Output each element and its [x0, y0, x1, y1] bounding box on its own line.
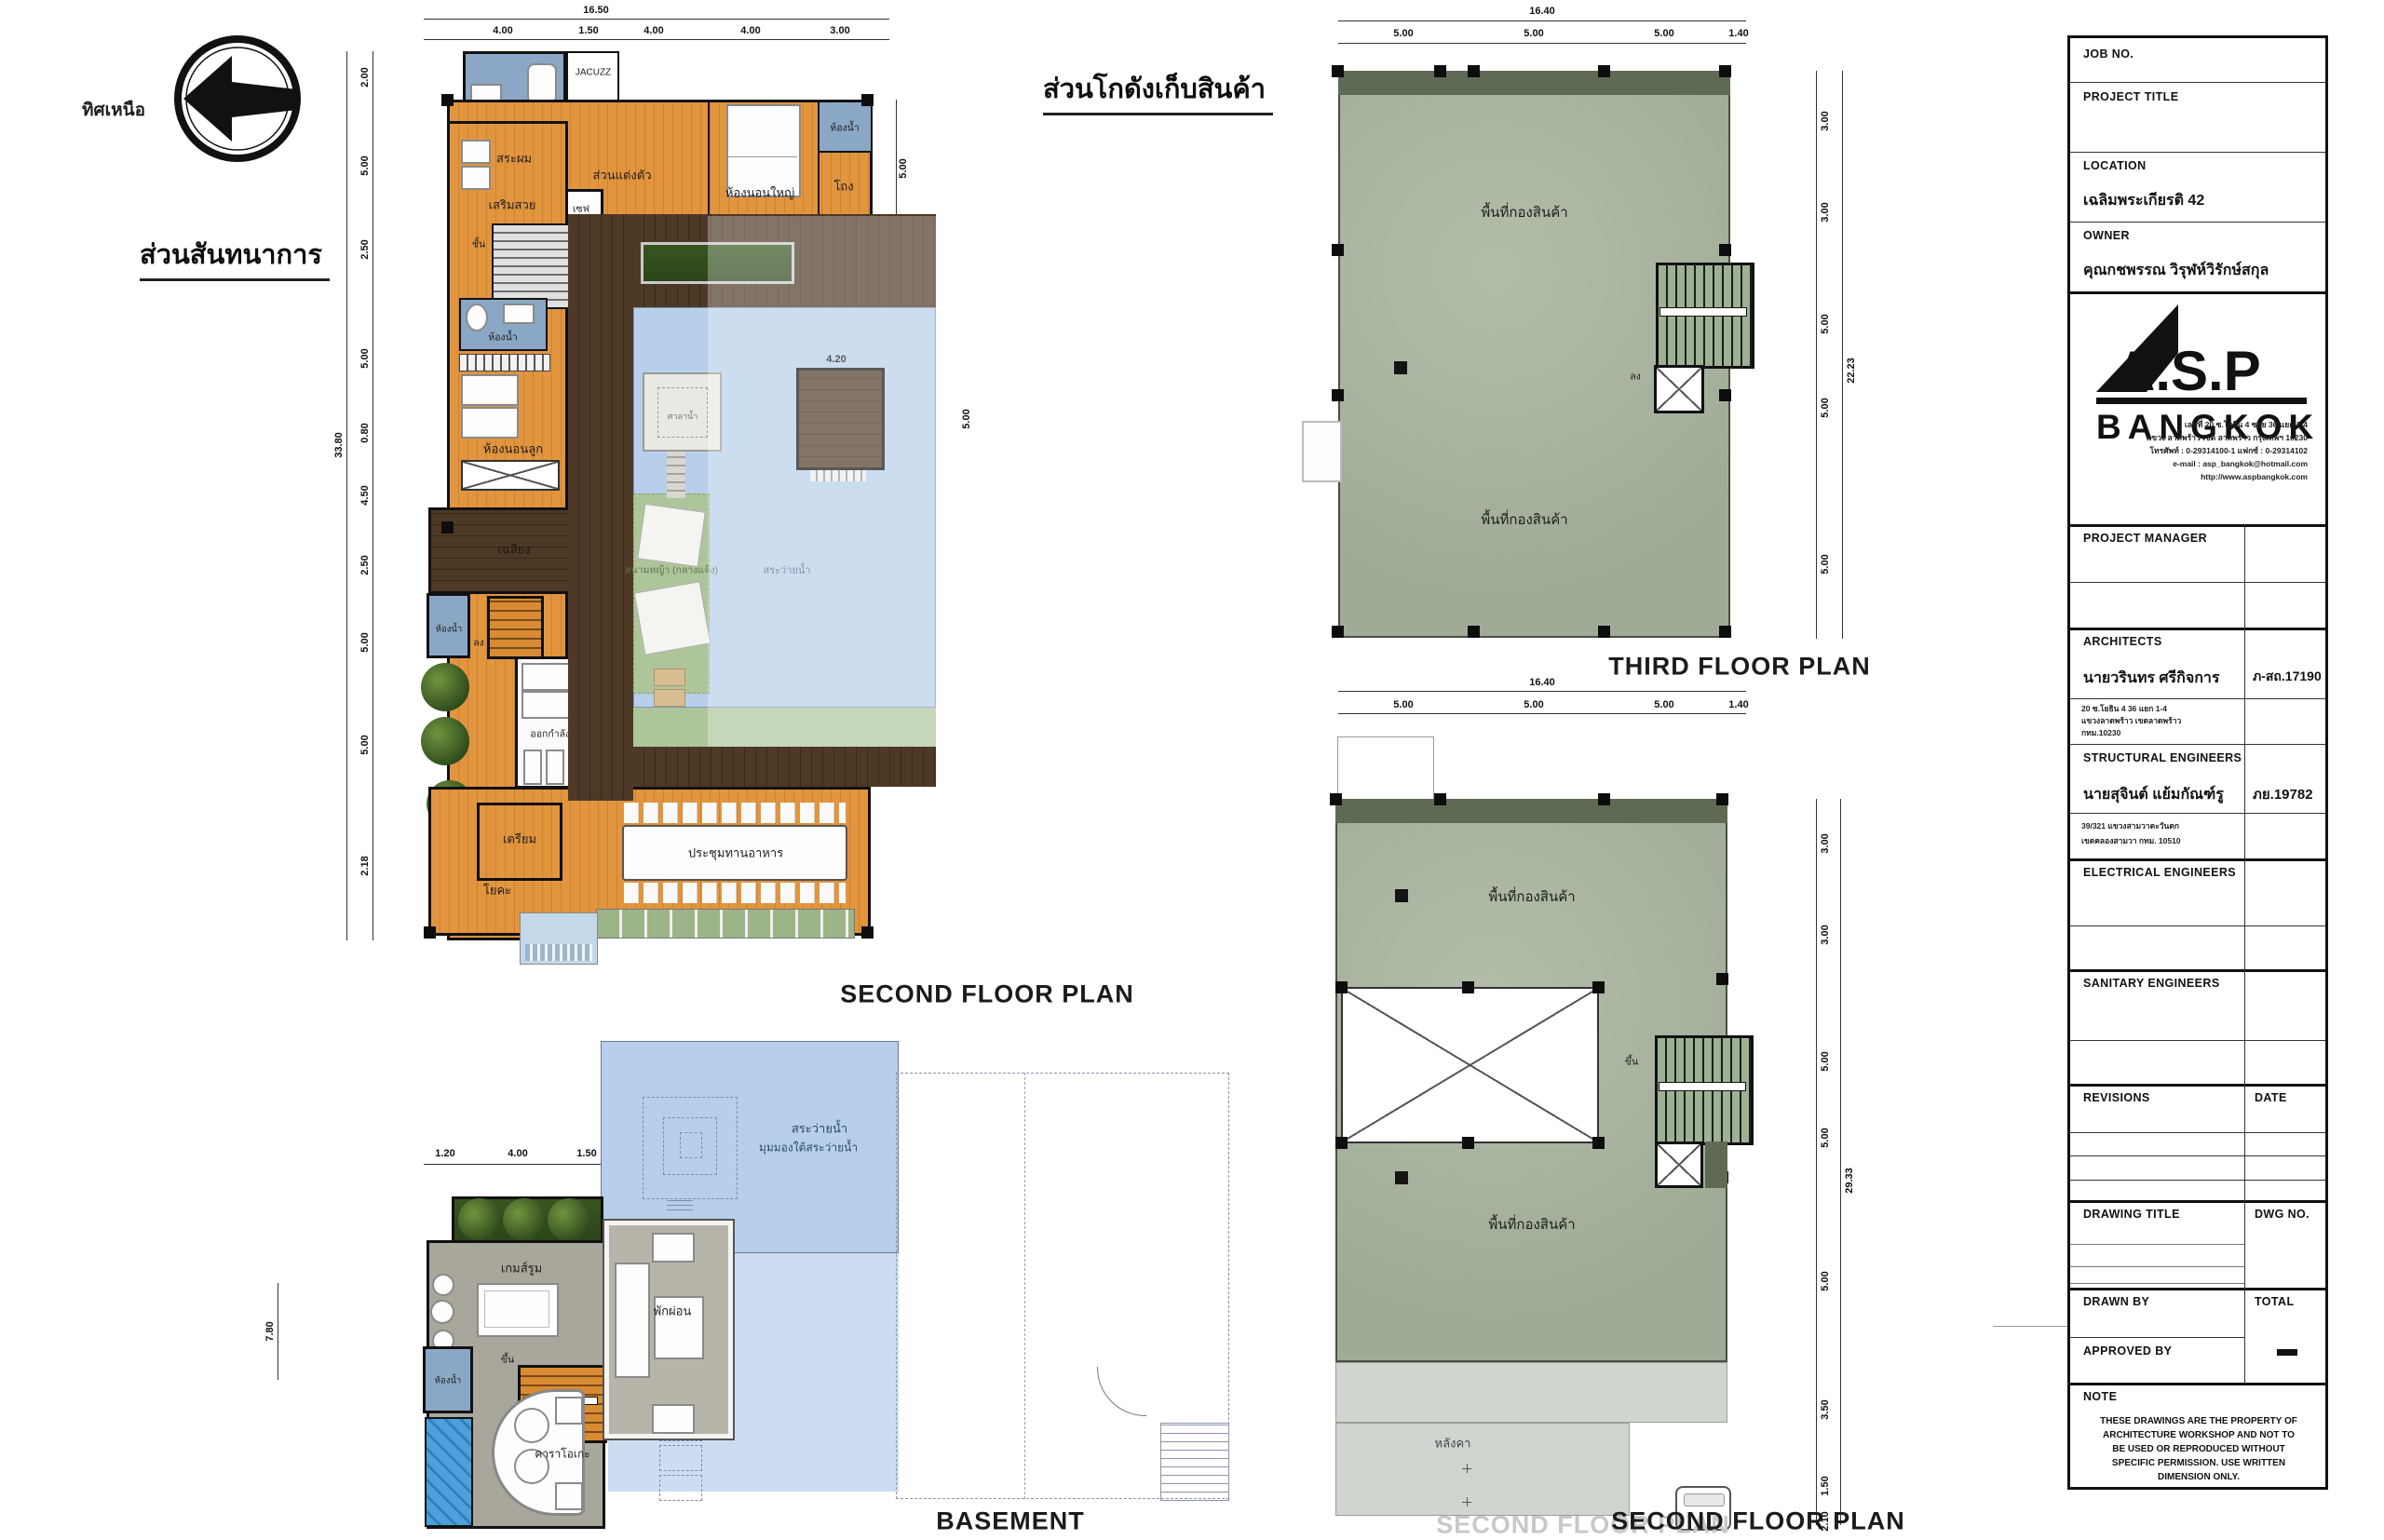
tree	[421, 663, 469, 711]
stool-icon	[555, 1482, 583, 1510]
room-label: ห้องน้ำ	[830, 120, 859, 136]
dim-line	[424, 39, 889, 40]
north-arrow-icon	[172, 34, 303, 164]
room-label: เตรียม	[503, 830, 536, 849]
owner-label: OWNER	[2083, 229, 2130, 242]
pool-step	[659, 1475, 702, 1501]
tb-divider	[2070, 1132, 2325, 1133]
architect-reg: ภ-สถ.17190	[2253, 667, 2322, 687]
dim-line	[346, 51, 347, 940]
dim-label: 5.00	[1524, 699, 1543, 710]
room-label: โถง	[833, 177, 853, 196]
column-marker	[1719, 65, 1731, 77]
project-manager-label: PROJECT MANAGER	[2083, 532, 2207, 545]
dim-line	[424, 1164, 605, 1165]
tb-subline	[2070, 1266, 2244, 1267]
stepping-stone	[654, 669, 685, 686]
room-label: พื้นที่กองสินค้า	[1481, 508, 1567, 531]
tb-divider	[2070, 291, 2325, 294]
structural-name: นายสุจินต์ แย้มกัณฑ์รู	[2083, 783, 2224, 806]
pool-step	[659, 1445, 702, 1471]
room-label: ประชุมทานอาหาร	[688, 844, 783, 863]
dim-label: 5.00	[1524, 28, 1543, 39]
tb-divider	[2070, 1180, 2325, 1181]
room-label: เฉลียง	[497, 540, 530, 560]
tb-divider	[2070, 1040, 2325, 1041]
dim-label-total: 29.33	[1844, 1168, 1855, 1194]
dim-label: 1.40	[1728, 28, 1748, 39]
stool-icon	[430, 1300, 454, 1324]
plunge-pool	[425, 1417, 473, 1527]
dim-label: 5.00	[359, 632, 371, 652]
bed-line	[726, 156, 797, 157]
tb-divider	[2070, 628, 2325, 630]
logo-name: A.S.P	[2115, 340, 2261, 402]
dim-label: 4.50	[359, 485, 371, 505]
structural-address-2: เขตคลองสามวา กทม. 10510	[2081, 835, 2181, 847]
room-label: ส่วนแต่งตัว	[592, 166, 651, 185]
dim-label: 4.00	[643, 25, 663, 36]
salon-chair-icon	[461, 166, 491, 190]
dim-label: 4.00	[493, 25, 512, 36]
dim-label: 3.00	[1820, 111, 1831, 130]
total-label: TOTAL	[2255, 1295, 2295, 1308]
porch-outline	[1337, 736, 1434, 801]
logo-address-5: http://www.aspbangkok.com	[2098, 470, 2308, 483]
note-label: NOTE	[2083, 1390, 2117, 1403]
dim-label: 3.00	[1820, 202, 1831, 222]
architect-address-3: กทม.10230	[2081, 727, 2120, 739]
drawing-sheet: ทิศเหนือ ส่วนสันทนาการ 16.50 4.00 1.50 4…	[0, 0, 2384, 1531]
tb-divider	[2070, 1155, 2325, 1156]
column-marker	[1394, 361, 1407, 374]
colonnade-walk	[596, 909, 855, 939]
column-marker	[1716, 973, 1728, 985]
sanitary-label: SANITARY ENGINEERS	[2083, 977, 2220, 990]
pavilion-walkway	[667, 452, 685, 498]
room-label: ขึ้น	[501, 1352, 514, 1368]
tb-divider	[2070, 582, 2325, 583]
third-plan-caption: THIRD FLOOR PLAN	[1608, 653, 1870, 682]
tb-divider	[2070, 698, 2325, 699]
tb-divider	[2070, 82, 2325, 83]
column-marker	[1332, 244, 1344, 256]
tb-divider	[2070, 925, 2325, 926]
room-label: ลง	[473, 635, 484, 651]
dim-label: 5.00	[1654, 28, 1673, 39]
dim-label: 2.50	[359, 239, 371, 259]
closet-strip	[459, 354, 550, 371]
stairs-up	[492, 223, 570, 309]
architect-address-2: แขวงลาดพร้าว เขตลาดพร้าว	[2081, 715, 2181, 727]
column-marker	[1332, 626, 1344, 638]
room-label: โยคะ	[483, 881, 511, 900]
dim-label: 5.00	[359, 155, 371, 175]
tb-divider	[2070, 1383, 2325, 1385]
structural-reg: ภย.19782	[2253, 783, 2313, 805]
void-opening	[1341, 987, 1599, 1143]
tb-divider	[2070, 1200, 2325, 1203]
dim-label: 1.50	[578, 25, 598, 36]
wall-band	[1335, 799, 1727, 823]
dim-label: 2.18	[359, 856, 371, 875]
bush	[548, 1198, 590, 1241]
dim-label: 7.80	[264, 1321, 276, 1341]
room-label: ห้องน้ำ	[436, 623, 462, 637]
column-marker	[1462, 1137, 1474, 1149]
dim-line	[1338, 43, 1746, 44]
column-marker	[441, 521, 454, 534]
pool-pavilion-outline	[680, 1132, 702, 1158]
dim-label: 5.00	[1820, 1051, 1831, 1071]
dim-label: 1.20	[435, 1148, 454, 1159]
room-label: สนามหญ้า (กลางแจ้ง)	[625, 562, 718, 578]
column-marker	[1719, 626, 1731, 638]
room-label: ขึ้น	[1625, 1054, 1638, 1070]
outline-stairs	[1160, 1423, 1229, 1501]
tb-divider	[2070, 744, 2325, 745]
architects-label: ARCHITECTS	[2083, 635, 2162, 648]
roof-area	[1335, 1423, 1630, 1516]
approved-by-label: APPROVED BY	[2083, 1344, 2172, 1358]
room-label: ลง	[1630, 369, 1641, 385]
tb-divider	[2070, 813, 2325, 814]
roof-mark	[1462, 1464, 1471, 1473]
job-no-label: JOB NO.	[2083, 47, 2133, 61]
room-label: พื้นที่กองสินค้า	[1481, 201, 1567, 223]
structural-address-1: 39/321 แขวงสามวาตะวันตก	[2081, 820, 2179, 832]
total-dash	[2277, 1349, 2297, 1356]
dwg-no-label: DWG NO.	[2255, 1208, 2309, 1221]
column-marker	[441, 94, 454, 106]
wall-band	[1338, 71, 1730, 95]
dim-label: 5.00	[1820, 1128, 1831, 1147]
column-marker	[1592, 981, 1605, 993]
logo-address-4: e-mail : asp_bangkok@hotmail.com	[2098, 457, 2308, 470]
tb-divider	[2070, 152, 2325, 153]
room-label: สระว่ายน้ำ	[792, 1119, 847, 1139]
column-marker	[1335, 1137, 1348, 1149]
tree	[421, 717, 469, 765]
column-marker	[1330, 793, 1342, 805]
drawing-title-label: DRAWING TITLE	[2083, 1208, 2180, 1221]
tb-vertical-divider	[2244, 1200, 2245, 1288]
recreation-heading: ส่วนสันทนาการ	[140, 233, 330, 281]
sink-icon	[503, 304, 535, 324]
toilet-icon	[527, 63, 557, 104]
dim-label: 5.00	[961, 409, 972, 428]
column-marker	[1434, 793, 1446, 805]
dim-label: 4.00	[740, 25, 760, 36]
tb-vertical-divider	[2244, 969, 2245, 1084]
dim-label: 2.00	[359, 67, 371, 87]
dim-label: 5.00	[359, 348, 371, 368]
paver	[634, 581, 711, 655]
structural-label: STRUCTURAL ENGINEERS	[2083, 751, 2242, 764]
tb-divider	[2070, 1337, 2244, 1338]
dim-label: 5.00	[1820, 554, 1831, 574]
dim-label: 5.00	[1820, 1271, 1831, 1290]
dim-label: 3.00	[1820, 833, 1831, 853]
dim-label: 3.50	[1820, 1399, 1831, 1419]
dim-label: 1.50	[576, 1148, 596, 1159]
paver	[637, 504, 706, 568]
stepping-stone	[654, 689, 685, 707]
room-label: หลังคา	[1435, 1434, 1471, 1453]
pool-deck-west	[568, 214, 633, 801]
warehouse-second-caption: SECOND FLOOR PLAN	[1611, 1507, 1905, 1536]
tb-vertical-divider	[2244, 524, 2245, 628]
date-label: DATE	[2255, 1091, 2287, 1104]
column-marker	[1592, 1137, 1605, 1149]
tb-subline	[2070, 1244, 2244, 1245]
bush	[458, 1198, 501, 1241]
column-marker	[1719, 244, 1731, 256]
column-marker	[861, 926, 874, 939]
column-marker	[1332, 65, 1344, 77]
elevator-shaft	[1655, 1141, 1703, 1188]
room-label: เสริมสวย	[489, 196, 536, 215]
chair-row	[624, 883, 846, 903]
dim-label-total: 22.23	[1846, 358, 1857, 384]
revisions-label: REVISIONS	[2083, 1091, 2150, 1104]
column-marker	[1434, 65, 1446, 77]
dim-label: 16.40	[1529, 6, 1555, 17]
column-marker	[1468, 626, 1480, 638]
dim-label: 3.00	[830, 25, 849, 36]
column-marker	[1332, 389, 1344, 401]
wall	[708, 100, 710, 226]
column-marker	[1468, 65, 1480, 77]
room-label: ศาลาน้ำ	[668, 410, 698, 423]
column-marker	[1719, 389, 1731, 401]
room-label: ห้องนอนใหญ่	[725, 183, 794, 203]
electrical-label: ELECTRICAL ENGINEERS	[2083, 866, 2236, 879]
column-marker	[1598, 626, 1610, 638]
architect-name: นายวรินทร ศรีกิจการ	[2083, 667, 2219, 690]
north-label: ทิศเหนือ	[82, 96, 145, 124]
dim-line	[1842, 71, 1843, 639]
tb-divider	[2070, 222, 2325, 223]
dim-line	[1338, 20, 1746, 21]
gym-machine-icon	[546, 750, 564, 785]
pool-ladder-icon	[667, 1197, 693, 1214]
stool-icon	[432, 1274, 454, 1296]
dim-label: 5.00	[1654, 699, 1673, 710]
room-label: เกมส์รูม	[501, 1259, 542, 1278]
column-marker	[861, 94, 874, 106]
chair-icon	[652, 1233, 695, 1263]
gym-machine-icon	[523, 750, 542, 785]
deck-divider	[1024, 1073, 1025, 1499]
cushion-icon	[514, 1408, 549, 1443]
warehouse-heading: ส่วนโกดังเก็บสินค้า	[1043, 67, 1273, 115]
project-title-label: PROJECT TITLE	[2083, 90, 2178, 103]
column-marker	[1598, 793, 1610, 805]
dim-line	[1816, 799, 1817, 1525]
stair-rail	[1659, 307, 1747, 317]
roof-area	[1335, 1362, 1727, 1423]
logo-address-2: แขวง ลาดพร้าว เขต ลาดพร้าว กรุงเทพฯ 1023…	[2098, 431, 2308, 444]
dim-label: 1.50	[1820, 1476, 1831, 1495]
sofa-icon	[615, 1263, 650, 1378]
room-label: สระผม	[496, 149, 532, 169]
bed-icon	[461, 374, 519, 406]
tb-divider	[2070, 858, 2325, 861]
note-text: THESE DRAWINGS ARE THE PROPERTY OF ARCHI…	[2100, 1414, 2297, 1484]
room-label: ห้องน้ำ	[488, 330, 517, 345]
dim-label: 5.00	[359, 735, 371, 754]
bush	[503, 1198, 546, 1241]
column-marker	[1598, 65, 1610, 77]
tb-vertical-divider	[2244, 858, 2245, 969]
room-label: JACUZZ	[576, 68, 611, 78]
side-outline	[1302, 421, 1342, 482]
tb-vertical-divider	[2244, 744, 2245, 858]
owner-value: คุณกชพรรณ วิรุฬห์วิรักษ์สกุล	[2083, 259, 2269, 282]
column-marker	[1335, 981, 1348, 993]
pool-deck-south	[633, 747, 936, 787]
tb-divider	[2070, 1084, 2325, 1087]
dim-label: 16.50	[583, 5, 609, 16]
room-label: พักผ่อน	[654, 1302, 692, 1321]
title-block: JOB NO. PROJECT TITLE LOCATION เฉลิมพระเ…	[2067, 35, 2328, 1490]
tb-subline	[2070, 1283, 2244, 1284]
entry-steps	[525, 944, 592, 961]
tb-vertical-divider	[2244, 1288, 2245, 1383]
pool-table-inner	[484, 1290, 549, 1328]
logo-address-1: เลขที่ 20 ซ.โยธิน 4 ซอย 36 แยก 1-4	[2098, 418, 2308, 431]
dim-label: 16.40	[1529, 677, 1555, 688]
tb-vertical-divider	[2244, 628, 2245, 744]
stairs-down	[487, 596, 544, 659]
dim-label: 0.80	[359, 423, 371, 442]
tb-divider	[2070, 1288, 2325, 1290]
dim-label: 3.00	[1820, 925, 1831, 944]
toilet-icon	[466, 304, 488, 331]
column-marker	[1395, 1171, 1408, 1184]
dim-line	[372, 51, 373, 940]
dim-label: 5.00	[898, 158, 909, 178]
room-label: พื้นที่กองสินค้า	[1488, 885, 1575, 908]
dim-label: 4.00	[508, 1148, 527, 1159]
wall-band	[1705, 1141, 1727, 1188]
dim-label: 5.00	[1393, 28, 1413, 39]
tb-divider	[2070, 524, 2325, 527]
drawn-by-label: DRAWN BY	[2083, 1295, 2149, 1308]
room-label: คาราโอเกะ	[535, 1446, 589, 1464]
dim-label: 5.00	[1393, 699, 1413, 710]
leader-line	[1993, 1326, 2067, 1327]
fade-overlay	[708, 216, 936, 747]
column-marker	[1395, 889, 1408, 902]
roof-mark	[1462, 1497, 1471, 1506]
dim-line	[424, 19, 889, 20]
logo-address-3: โทรศัพท์ : 0-29314100-1 แฟกซ์ : 0-293141…	[2098, 444, 2308, 457]
chair-row	[624, 803, 846, 823]
dim-label-total: 33.80	[333, 432, 345, 458]
location-label: LOCATION	[2083, 159, 2147, 172]
salon-chair-icon	[461, 140, 491, 164]
dim-label: 1.40	[1728, 699, 1748, 710]
balcony-void	[461, 460, 560, 491]
dim-line	[1338, 713, 1746, 714]
room-label: พื้นที่กองสินค้า	[1488, 1213, 1575, 1236]
room-label: มุมมองใต้สระว่ายน้ำ	[759, 1140, 858, 1157]
location-value: เฉลิมพระเกียรติ 42	[2083, 189, 2204, 212]
tb-vertical-divider	[2244, 1084, 2245, 1200]
stair-rail	[1659, 1082, 1746, 1091]
chair-icon	[652, 1404, 695, 1434]
main-plan-caption: SECOND FLOOR PLAN	[840, 980, 1134, 1009]
tb-divider	[2070, 969, 2325, 972]
dim-line	[278, 1283, 278, 1380]
elevator-shaft	[1654, 365, 1704, 413]
dim-label: 5.00	[1820, 314, 1831, 333]
car-windshield	[1684, 1493, 1725, 1506]
room-label: ห้องน้ำ	[435, 1374, 461, 1388]
room-label: ชั้น	[472, 236, 485, 252]
dim-line	[1840, 799, 1841, 1525]
column-marker	[1716, 793, 1728, 805]
dim-line	[1816, 71, 1817, 639]
room-label: ห้องนอนลูก	[483, 439, 543, 459]
dim-line	[1338, 691, 1746, 692]
column-marker	[1462, 981, 1474, 993]
basement-caption: BASEMENT	[936, 1507, 1085, 1536]
dim-label: 5.00	[1820, 398, 1831, 417]
dim-label: 2.50	[359, 555, 371, 574]
column-marker	[424, 926, 436, 939]
stool-icon	[555, 1397, 583, 1425]
bed-icon	[461, 407, 519, 439]
architect-address-1: 20 ซ.โยธิน 4 36 แยก 1-4	[2081, 703, 2167, 715]
